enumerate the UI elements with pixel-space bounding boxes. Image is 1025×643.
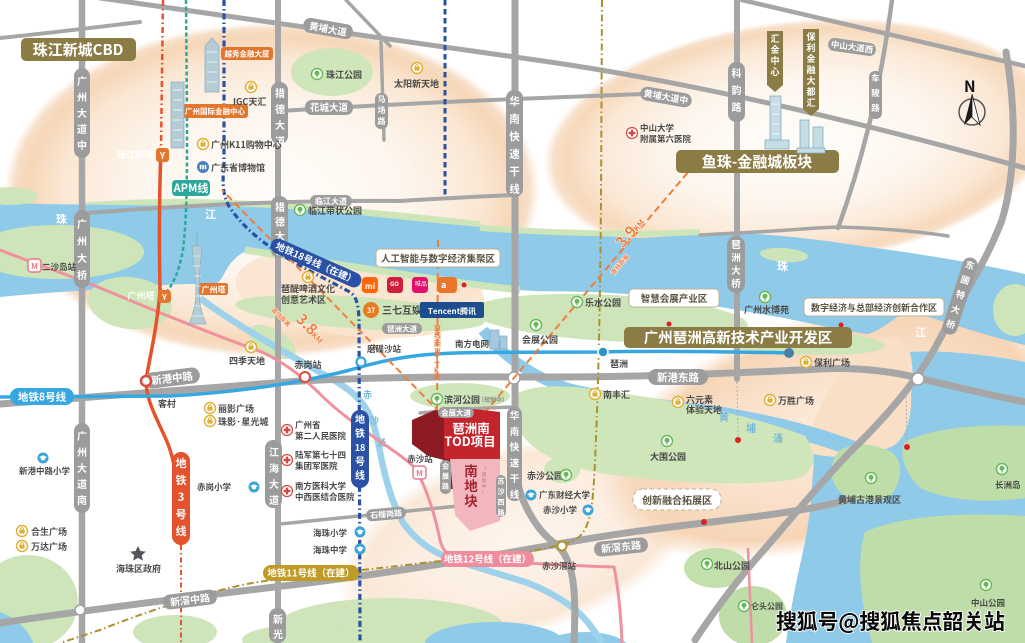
svg-text:珠江公园: 珠江公园 — [326, 68, 362, 81]
svg-text:广州水博苑: 广州水博苑 — [744, 303, 789, 316]
svg-text:四季天地: 四季天地 — [229, 354, 265, 367]
svg-text:广州大道南: 广州大道南 — [77, 428, 87, 507]
svg-text:直线距离1KM: 直线距离1KM — [434, 323, 441, 383]
svg-text:赤沙站: 赤沙站 — [407, 453, 433, 465]
svg-text:赤沙公园: 赤沙公园 — [527, 469, 563, 482]
svg-text:a: a — [441, 278, 446, 291]
svg-text:GO: GO — [390, 279, 399, 288]
svg-text:Y: Y — [159, 149, 166, 162]
svg-text:新光: 新光 — [273, 611, 283, 641]
svg-text:APM线: APM线 — [173, 180, 209, 196]
svg-text:IGC天汇: IGC天汇 — [233, 95, 266, 108]
svg-text:赤沙滘站: 赤沙滘站 — [542, 560, 577, 572]
svg-text:广州K11购物中心: 广州K11购物中心 — [211, 138, 282, 151]
svg-text:汇金中心: 汇金中心 — [770, 32, 779, 78]
svg-text:集团军医院: 集团军医院 — [295, 460, 338, 472]
svg-text:地铁8号线: 地铁8号线 — [18, 390, 67, 405]
svg-text:广东财经大学: 广东财经大学 — [539, 489, 591, 501]
svg-text:珠江新城: 珠江新城 — [117, 148, 153, 161]
svg-text:车陂路: 车陂路 — [871, 72, 880, 114]
svg-text:琶洲: 琶洲 — [610, 357, 628, 370]
svg-text:马场路: 马场路 — [378, 94, 386, 127]
svg-text:赤: 赤 — [363, 388, 372, 401]
svg-text:黄埔古港景观区: 黄埔古港景观区 — [838, 493, 901, 506]
svg-text:万达广场: 万达广场 — [31, 540, 67, 553]
svg-text:滨河公园: 滨河公园 — [444, 393, 480, 406]
svg-text:（规划中）: （规划中） — [482, 466, 487, 496]
svg-text:人工智能与数字经济集聚区: 人工智能与数字经济集聚区 — [381, 251, 496, 265]
svg-text:南地块: 南地块 — [464, 460, 478, 510]
svg-text:赤岗站: 赤岗站 — [294, 358, 321, 371]
svg-text:华南快速干线: 华南快速干线 — [510, 408, 520, 501]
svg-text:珠江新城CBD: 珠江新城CBD — [33, 39, 124, 60]
svg-text:黄: 黄 — [719, 409, 729, 424]
svg-text:Y: Y — [161, 292, 167, 303]
svg-text:丽影广场: 丽影广场 — [218, 402, 254, 415]
svg-text:埔: 埔 — [746, 420, 756, 435]
svg-text:中西医结合医院: 中西医结合医院 — [295, 491, 355, 503]
svg-text:磨碟沙站: 磨碟沙站 — [367, 343, 402, 355]
svg-text:（规划中）: （规划中） — [478, 395, 508, 404]
svg-text:越秀金融大厦: 越秀金融大厦 — [225, 49, 270, 60]
svg-text:北山公园: 北山公园 — [714, 559, 750, 572]
svg-text:万胜广场: 万胜广场 — [778, 394, 814, 407]
svg-text:珠影·星光城: 珠影·星光城 — [218, 415, 268, 428]
svg-text:会展大道: 会展大道 — [441, 408, 471, 419]
svg-text:南方电网: 南方电网 — [455, 338, 489, 350]
svg-text:大围公园: 大围公园 — [650, 450, 686, 463]
svg-text:沙: 沙 — [370, 414, 379, 427]
svg-text:赤岗小学: 赤岗小学 — [197, 481, 232, 493]
svg-text:Tencent腾讯: Tencent腾讯 — [428, 306, 476, 317]
svg-text:琶洲大桥: 琶洲大桥 — [731, 237, 741, 290]
svg-text:珠: 珠 — [777, 258, 788, 274]
svg-text:创意艺术区: 创意艺术区 — [281, 293, 326, 306]
svg-text:海珠中学: 海珠中学 — [313, 544, 348, 556]
svg-text:苏沙西路: 苏沙西路 — [498, 477, 505, 519]
svg-text:会展公园: 会展公园 — [522, 333, 558, 346]
svg-text:37: 37 — [367, 306, 375, 316]
svg-text:创新融合拓展区: 创新融合拓展区 — [642, 492, 712, 507]
svg-text:附属第六医院: 附属第六医院 — [640, 133, 692, 145]
svg-text:太阳新天地: 太阳新天地 — [394, 77, 439, 90]
svg-text:广州塔: 广州塔 — [127, 289, 154, 302]
svg-text:新港东路: 新港东路 — [657, 370, 699, 385]
svg-text:广东省博物馆: 广东省博物馆 — [211, 161, 265, 174]
svg-text:地铁11号线（在建）: 地铁11号线（在建） — [267, 566, 354, 580]
svg-text:江海大道: 江海大道 — [269, 444, 279, 507]
svg-text:琶洲大道: 琶洲大道 — [387, 324, 417, 335]
svg-text:广州大道中: 广州大道中 — [77, 73, 87, 152]
svg-text:南丰汇: 南丰汇 — [603, 388, 630, 401]
svg-text:二沙岛站: 二沙岛站 — [42, 261, 77, 273]
svg-text:科韵路: 科韵路 — [732, 65, 742, 114]
svg-text:花城大道: 花城大道 — [310, 100, 349, 114]
svg-text:珠: 珠 — [56, 211, 67, 227]
svg-text:海珠区政府: 海珠区政府 — [116, 562, 161, 575]
svg-text:M: M — [416, 468, 423, 479]
svg-text:搜狐号@搜狐焦点韶关站: 搜狐号@搜狐焦点韶关站 — [776, 605, 1005, 635]
svg-text:地铁12号线（在建）: 地铁12号线（在建） — [444, 552, 531, 566]
svg-text:会展路: 会展路 — [442, 462, 449, 492]
svg-text:保利广场: 保利广场 — [814, 356, 850, 369]
svg-text:新港中路小学: 新港中路小学 — [19, 465, 71, 477]
svg-text:长洲岛: 长洲岛 — [995, 479, 1021, 491]
svg-text:合生广场: 合生广场 — [31, 525, 67, 538]
svg-text:临江带状公园: 临江带状公园 — [308, 204, 362, 217]
svg-text:江: 江 — [915, 324, 926, 340]
svg-text:涌: 涌 — [773, 430, 783, 445]
svg-text:唯品: 唯品 — [415, 279, 427, 288]
svg-text:智慧会展产业区: 智慧会展产业区 — [641, 291, 708, 305]
svg-text:三七互娱: 三七互娱 — [382, 302, 422, 317]
svg-text:地铁18号线: 地铁18号线 — [355, 411, 366, 482]
svg-text:广州塔: 广州塔 — [202, 285, 226, 296]
svg-text:mi: mi — [365, 281, 375, 292]
svg-text:保利金融大都汇: 保利金融大都汇 — [806, 30, 815, 109]
svg-text:乐水公园: 乐水公园 — [585, 296, 621, 309]
svg-text:M: M — [31, 261, 38, 272]
svg-text:广州琶洲高新技术产业开发区: 广州琶洲高新技术产业开发区 — [644, 327, 833, 348]
svg-text:第二人民医院: 第二人民医院 — [295, 430, 347, 442]
svg-text:鱼珠-金融城板块: 鱼珠-金融城板块 — [702, 151, 813, 172]
svg-text:TOD项目: TOD项目 — [444, 431, 495, 450]
svg-text:客村: 客村 — [158, 397, 176, 410]
svg-text:体验天地: 体验天地 — [686, 403, 722, 416]
svg-text:海珠小学: 海珠小学 — [313, 527, 348, 539]
svg-text:N: N — [964, 75, 976, 97]
svg-text:江: 江 — [205, 206, 216, 222]
svg-text:数字经济与总部经济创新合作区: 数字经济与总部经济创新合作区 — [811, 301, 937, 314]
svg-text:赤沙小学: 赤沙小学 — [543, 504, 578, 516]
